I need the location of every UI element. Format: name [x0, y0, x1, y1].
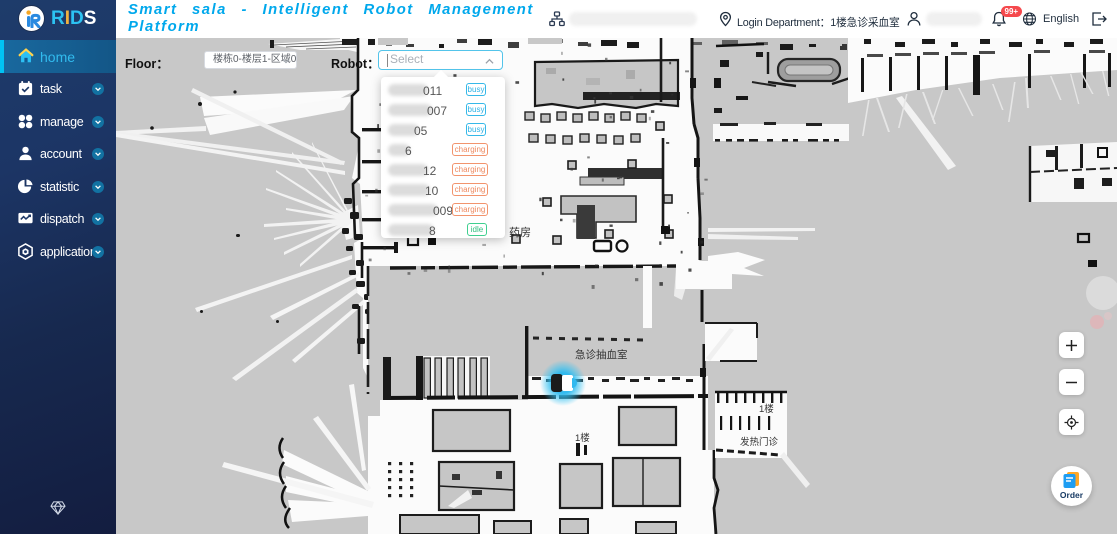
svg-text:1楼: 1楼 [575, 432, 590, 444]
svg-text:急诊抽血室: 急诊抽血室 [575, 348, 628, 361]
svg-text:发热门诊: 发热门诊 [740, 436, 779, 448]
svg-text:药房: 药房 [509, 226, 531, 239]
svg-text:1楼: 1楼 [759, 403, 774, 415]
